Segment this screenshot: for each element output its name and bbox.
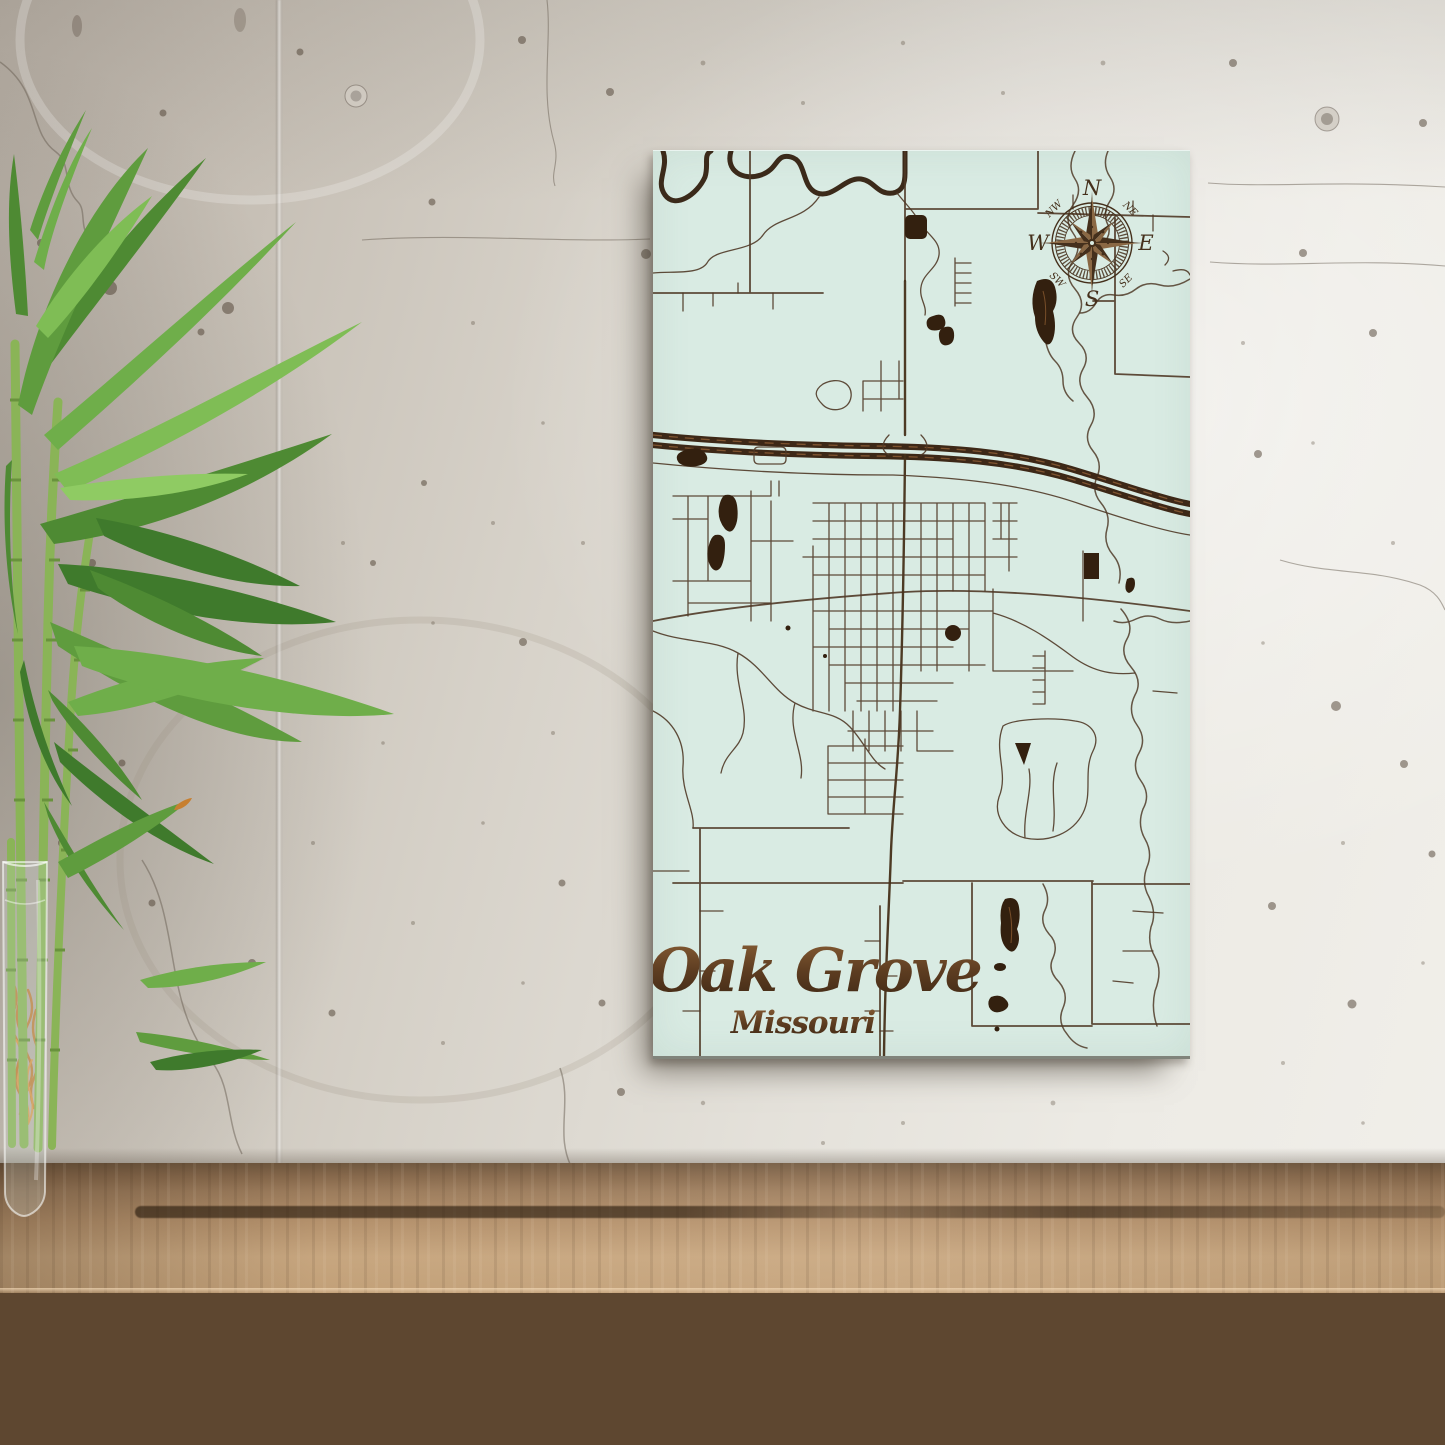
plant-leaves xyxy=(5,110,395,1070)
table-front-face xyxy=(0,1293,1445,1445)
wall-texture xyxy=(0,0,1445,1445)
plant-canes xyxy=(6,344,90,1148)
concrete-wall xyxy=(0,0,1445,1445)
compass-letter-ne: NE xyxy=(1119,199,1139,219)
compass-rose: N E S W NW NE SW SE xyxy=(1027,176,1153,311)
map-engraving: N E S W NW NE SW SE Oak Grove Missouri xyxy=(653,151,1190,1056)
bamboo-plant xyxy=(0,100,500,1240)
map-section-roads xyxy=(653,151,1190,1056)
compass-letter-s: S xyxy=(1085,287,1099,311)
table-top-crack xyxy=(135,1206,1445,1218)
glass-vase xyxy=(3,862,47,1216)
plant-roots xyxy=(11,980,38,1128)
map-streams xyxy=(661,151,905,201)
compass-letter-n: N xyxy=(1082,176,1102,200)
map-rivers xyxy=(1043,151,1190,1048)
map-highway xyxy=(653,435,1190,514)
map-minor-streets xyxy=(653,193,1190,1031)
cane-nodes xyxy=(6,400,90,1060)
compass-letter-e: E xyxy=(1137,231,1153,255)
map-subtitle: Missouri xyxy=(730,1005,876,1041)
form-tie-holes xyxy=(72,8,1339,131)
table-shadow xyxy=(0,1148,1445,1163)
wall-speckles xyxy=(311,41,1425,1145)
compass-letter-se: SE xyxy=(1117,272,1135,290)
trowel-swirls xyxy=(20,0,720,1100)
table-top xyxy=(0,1163,1445,1293)
compass-star xyxy=(1046,197,1138,289)
wall-cracks xyxy=(0,0,1445,1164)
compass-letter-sw: SW xyxy=(1047,270,1067,290)
compass-letter-w: W xyxy=(1027,231,1051,255)
wooden-map-art: N E S W NW NE SW SE Oak Grove Missouri xyxy=(653,150,1190,1059)
wall-pockmarks xyxy=(37,36,1436,1096)
map-lakes xyxy=(677,215,1135,1032)
compass-letter-nw: NW xyxy=(1043,198,1065,220)
table-edge-highlight xyxy=(0,1288,1445,1293)
compass-dots xyxy=(1075,226,1109,260)
map-title: Oak Grove xyxy=(653,936,981,1006)
map-main-street xyxy=(884,281,905,1056)
wall-seam xyxy=(276,0,282,1168)
